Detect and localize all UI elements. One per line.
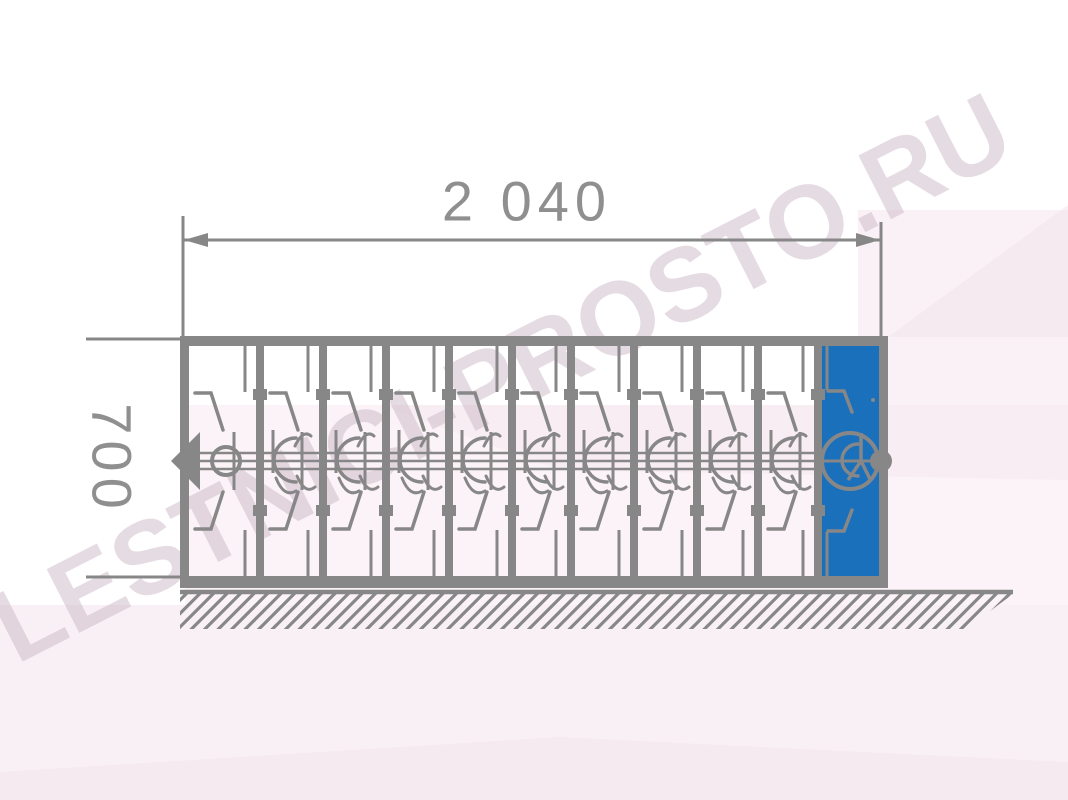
- top-rail: [180, 336, 888, 346]
- ground-hatching: [150, 592, 1068, 630]
- dimension-arrow-right: [856, 233, 880, 247]
- drawing-canvas: LESTNICI-PROSTO.RU 2 040 700: [0, 0, 1068, 800]
- width-dimension: [183, 216, 881, 336]
- bottom-rail: [180, 576, 888, 588]
- dimension-arrow-left: [184, 233, 208, 247]
- grille-technical-drawing: [0, 0, 1068, 800]
- height-dimension-label: 700: [80, 403, 145, 514]
- grille-assembly: [171, 336, 892, 588]
- pin-dot: [871, 398, 875, 402]
- handle-knob: [870, 450, 892, 472]
- width-dimension-label: 2 040: [442, 169, 612, 234]
- scissor-mechanism-lines: [189, 453, 822, 469]
